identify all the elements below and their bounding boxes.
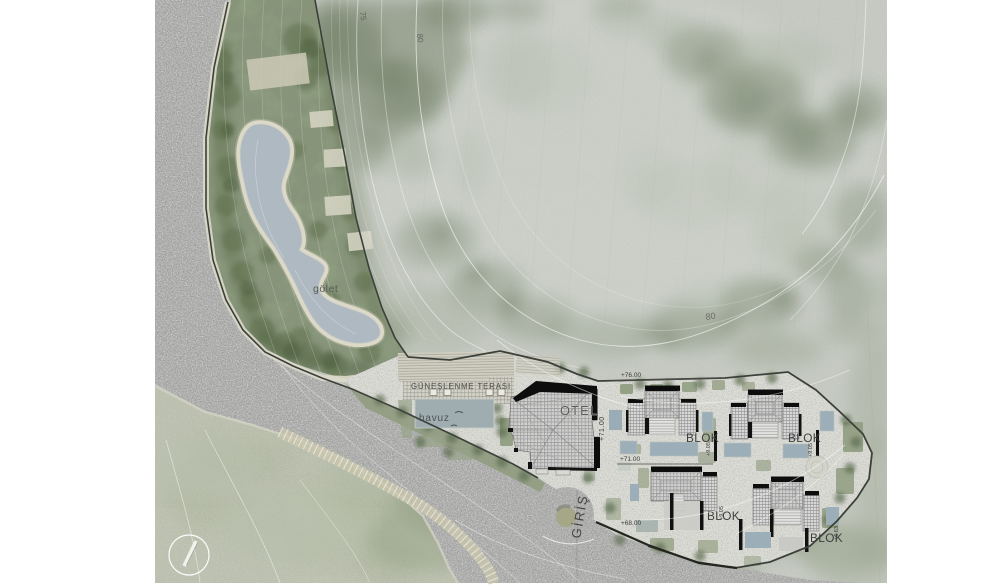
- svg-text:+6.63: +6.63: [834, 526, 840, 540]
- svg-text:75: 75: [358, 11, 368, 21]
- svg-text:OTEL: OTEL: [560, 403, 598, 418]
- svg-text:+71.00: +71.00: [599, 416, 606, 441]
- svg-text:GÜNEŞLENME TERASI: GÜNEŞLENME TERASI: [411, 382, 511, 391]
- svg-text:havuz: havuz: [419, 413, 450, 424]
- svg-text:+9.05: +9.05: [808, 443, 814, 457]
- svg-text:+71.00: +71.00: [620, 456, 640, 463]
- svg-text:+9.05: +9.05: [719, 506, 725, 520]
- svg-text:+9.05: +9.05: [706, 442, 712, 456]
- svg-text:BLOK: BLOK: [788, 431, 821, 445]
- svg-text:+68.00: +68.00: [621, 520, 641, 527]
- svg-text:+76.00: +76.00: [621, 372, 641, 379]
- svg-text:BLOK: BLOK: [686, 431, 719, 445]
- svg-text:80: 80: [705, 311, 716, 322]
- svg-text:80: 80: [415, 33, 425, 43]
- svg-text:gölet: gölet: [313, 283, 338, 295]
